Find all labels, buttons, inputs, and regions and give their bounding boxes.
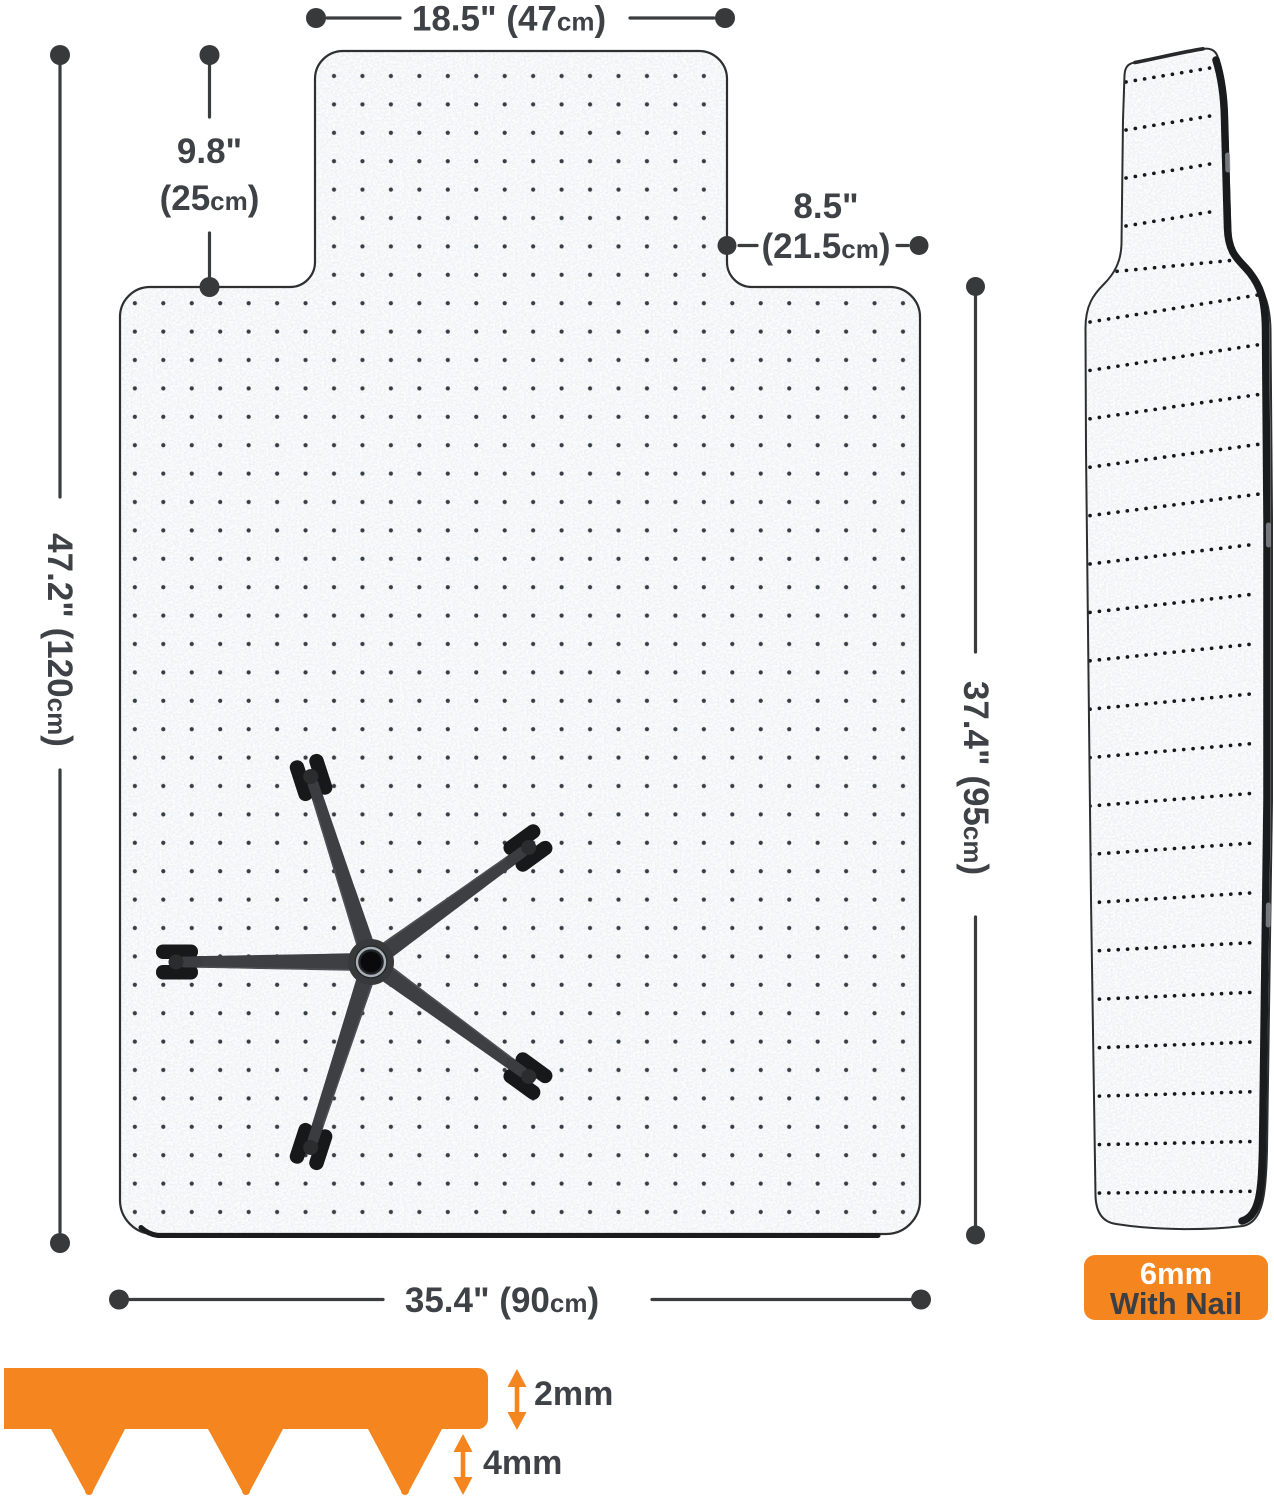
svg-text:37.4" (95cm): 37.4" (95cm) (956, 681, 995, 875)
svg-text:18.5" (47cm): 18.5" (47cm) (412, 0, 606, 39)
svg-text:2mm: 2mm (534, 1375, 613, 1413)
svg-text:4mm: 4mm (483, 1444, 562, 1482)
svg-text:35.4" (90cm): 35.4" (90cm) (405, 1281, 599, 1320)
svg-text:(21.5cm): (21.5cm) (761, 227, 890, 266)
svg-text:47.2" (120cm): 47.2" (120cm) (40, 533, 79, 747)
svg-text:(25cm): (25cm) (160, 179, 260, 218)
svg-text:9.8": 9.8" (177, 132, 242, 171)
svg-text:With Nail: With Nail (1110, 1286, 1242, 1321)
svg-text:8.5": 8.5" (793, 187, 858, 226)
